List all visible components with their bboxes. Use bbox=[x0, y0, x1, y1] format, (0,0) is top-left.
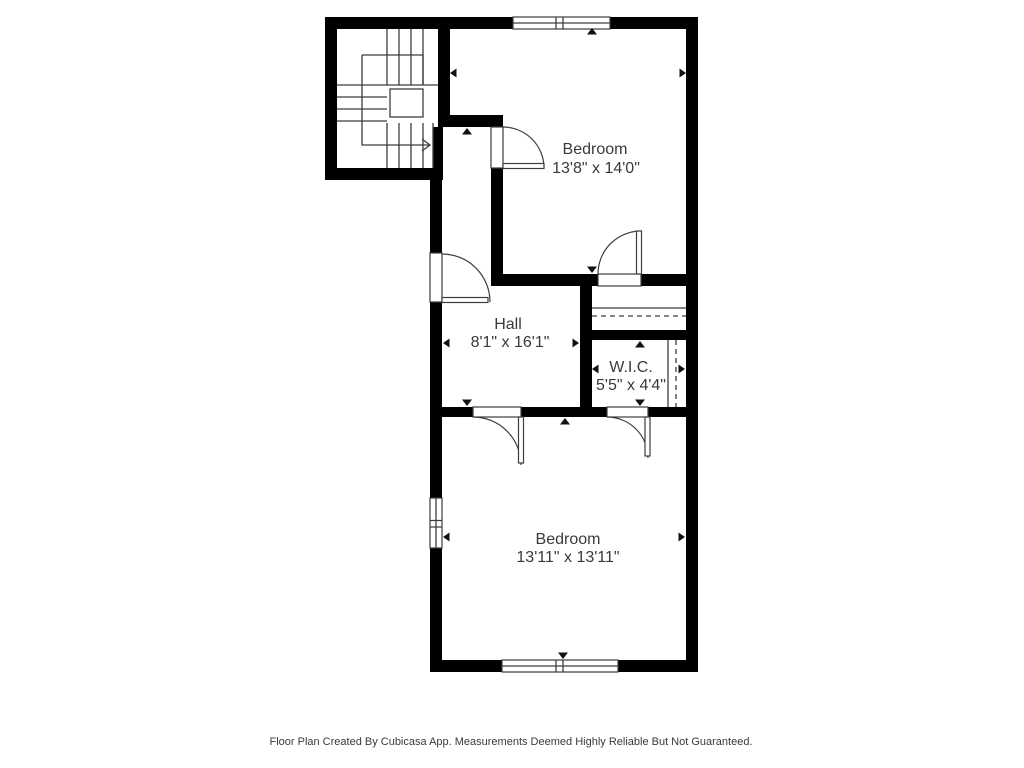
measure-marker-right bbox=[573, 339, 580, 348]
wall-segment bbox=[325, 17, 337, 180]
measure-marker-down bbox=[587, 267, 597, 274]
room-dimensions-wic: 5'5" x 4'4" bbox=[596, 377, 666, 394]
measure-marker-down bbox=[635, 400, 645, 407]
door-hall-west bbox=[430, 253, 490, 303]
wall-segment bbox=[433, 127, 443, 180]
measure-marker-right bbox=[679, 533, 686, 542]
door-leaf bbox=[503, 164, 544, 169]
staircase bbox=[337, 29, 438, 168]
door-swing-arc bbox=[503, 127, 544, 168]
room-dimensions-bedroom-bottom: 13'11" x 13'11" bbox=[516, 549, 619, 566]
door-opening bbox=[607, 407, 648, 417]
wall-segment bbox=[325, 17, 698, 29]
door-opening bbox=[473, 407, 521, 417]
door-bottom-bedroom-hall bbox=[473, 407, 524, 465]
door-leaf bbox=[637, 231, 642, 274]
door-swing-arc bbox=[473, 417, 521, 465]
stair-treads-upper bbox=[387, 29, 423, 85]
measure-marker-up bbox=[635, 341, 645, 348]
wall-segment bbox=[430, 180, 442, 253]
door-top-bedroom bbox=[491, 127, 544, 169]
door-swing-arc bbox=[607, 417, 648, 458]
door-bottom-bedroom-wic bbox=[607, 407, 650, 458]
measure-marker-up bbox=[560, 418, 570, 425]
wall-segment bbox=[491, 168, 503, 286]
wall-segment bbox=[438, 17, 450, 127]
door-opening bbox=[491, 127, 503, 168]
wall-segment bbox=[648, 407, 698, 417]
room-dimensions-hall: 8'1" x 16'1" bbox=[471, 334, 550, 351]
footer-disclaimer: Floor Plan Created By Cubicasa App. Meas… bbox=[269, 736, 752, 748]
wall-segment bbox=[686, 17, 698, 672]
window-left bbox=[430, 498, 442, 548]
door-swing-arc bbox=[598, 231, 641, 274]
floor-plan: Bedroom 13'8" x 14'0" Hall 8'1" x 16'1" … bbox=[0, 0, 1024, 768]
window-bottom bbox=[502, 660, 618, 672]
wall-segment bbox=[325, 168, 443, 180]
measure-marker-down bbox=[558, 653, 568, 660]
floor-plan-canvas: Bedroom 13'8" x 14'0" Hall 8'1" x 16'1" … bbox=[0, 0, 1024, 768]
wall-segment bbox=[580, 330, 698, 340]
door-closet bbox=[598, 231, 642, 286]
wall-segment bbox=[430, 407, 473, 417]
wall-segment bbox=[641, 274, 698, 286]
wall-segment bbox=[430, 302, 442, 498]
door-leaf bbox=[645, 417, 650, 456]
measure-marker-left bbox=[592, 365, 599, 374]
door-swing-arc bbox=[442, 254, 490, 302]
room-name-bedroom-bottom: Bedroom bbox=[536, 531, 601, 548]
wall-segment bbox=[430, 548, 442, 660]
room-name-hall: Hall bbox=[494, 316, 522, 333]
measure-marker-left bbox=[443, 339, 450, 348]
room-dimensions-bedroom-top: 13'8" x 14'0" bbox=[552, 160, 640, 177]
door-opening bbox=[598, 274, 641, 286]
measure-marker-left bbox=[443, 533, 450, 542]
measure-marker-right bbox=[680, 69, 687, 78]
measure-marker-up bbox=[462, 128, 472, 135]
stairs-direction-arrow bbox=[362, 55, 430, 151]
door-leaf bbox=[442, 298, 488, 303]
measure-marker-down bbox=[462, 400, 472, 407]
door-leaf bbox=[519, 417, 524, 463]
room-name-wic: W.I.C. bbox=[609, 359, 653, 376]
wall-segment bbox=[491, 115, 503, 127]
window-top bbox=[513, 17, 610, 29]
measure-marker-left bbox=[450, 69, 457, 78]
stair-inner-stringer bbox=[362, 55, 423, 85]
stair-inner-landing bbox=[390, 89, 423, 117]
wall-segment bbox=[521, 407, 607, 417]
room-name-bedroom-top: Bedroom bbox=[563, 141, 628, 158]
measure-marker-right bbox=[679, 365, 686, 374]
door-opening bbox=[430, 253, 442, 302]
wall-segment bbox=[580, 274, 592, 417]
